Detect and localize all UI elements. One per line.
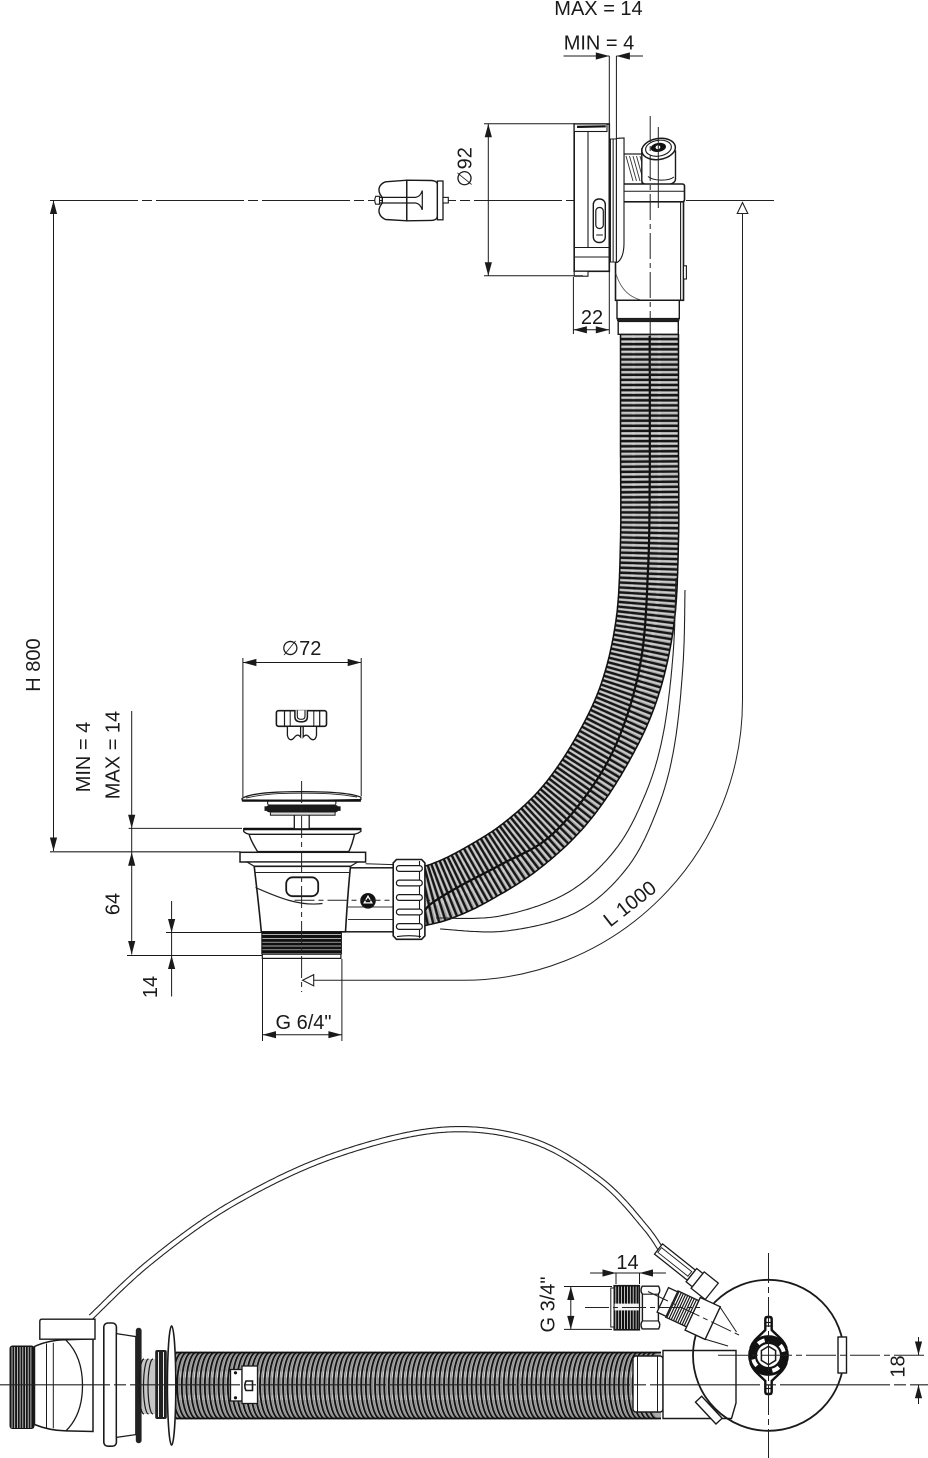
svg-text:MIN = 4: MIN = 4 xyxy=(564,33,635,55)
svg-text:∅72: ∅72 xyxy=(282,638,322,660)
svg-text:G 6/4": G 6/4" xyxy=(275,1012,331,1034)
svg-text:MAX = 14: MAX = 14 xyxy=(554,0,642,20)
svg-text:22: 22 xyxy=(581,307,603,329)
svg-text:MAX = 14: MAX = 14 xyxy=(103,711,125,799)
svg-text:18: 18 xyxy=(888,1355,910,1377)
svg-text:H 800: H 800 xyxy=(23,638,45,691)
svg-text:14: 14 xyxy=(616,1252,638,1274)
svg-text:MIN = 4: MIN = 4 xyxy=(73,722,95,793)
svg-text:G 3/4": G 3/4" xyxy=(538,1276,560,1332)
svg-text:64: 64 xyxy=(103,893,125,915)
svg-text:14: 14 xyxy=(140,976,162,998)
svg-text:∅92: ∅92 xyxy=(455,147,477,187)
